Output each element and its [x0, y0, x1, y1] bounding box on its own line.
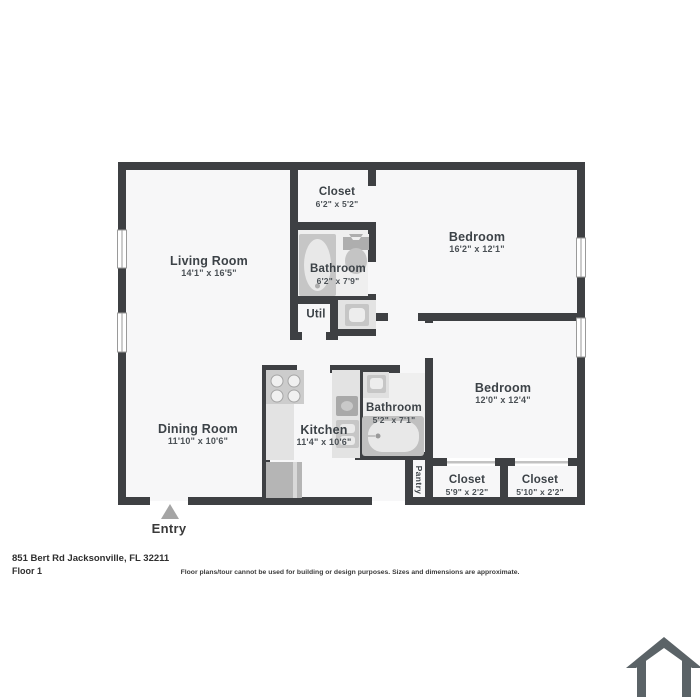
disclaimer-text: Floor plans/tour cannot be used for buil… [181, 569, 520, 576]
house-icon [626, 637, 700, 697]
kitchen-counter [266, 404, 294, 460]
entry-label: Entry [152, 521, 187, 536]
floor-plan-drawing [0, 0, 700, 700]
floor-number: Floor 1 [12, 566, 42, 576]
property-address: 851 Bert Rd Jacksonville, FL 32211 [12, 553, 169, 564]
hall-sink [338, 300, 376, 329]
floor-plan-page: Living Room 14'1" x 16'5" Closet 6'2" x … [0, 0, 700, 700]
room-label-pantry: Pantry [414, 466, 424, 495]
entry-arrow-icon [161, 504, 179, 519]
